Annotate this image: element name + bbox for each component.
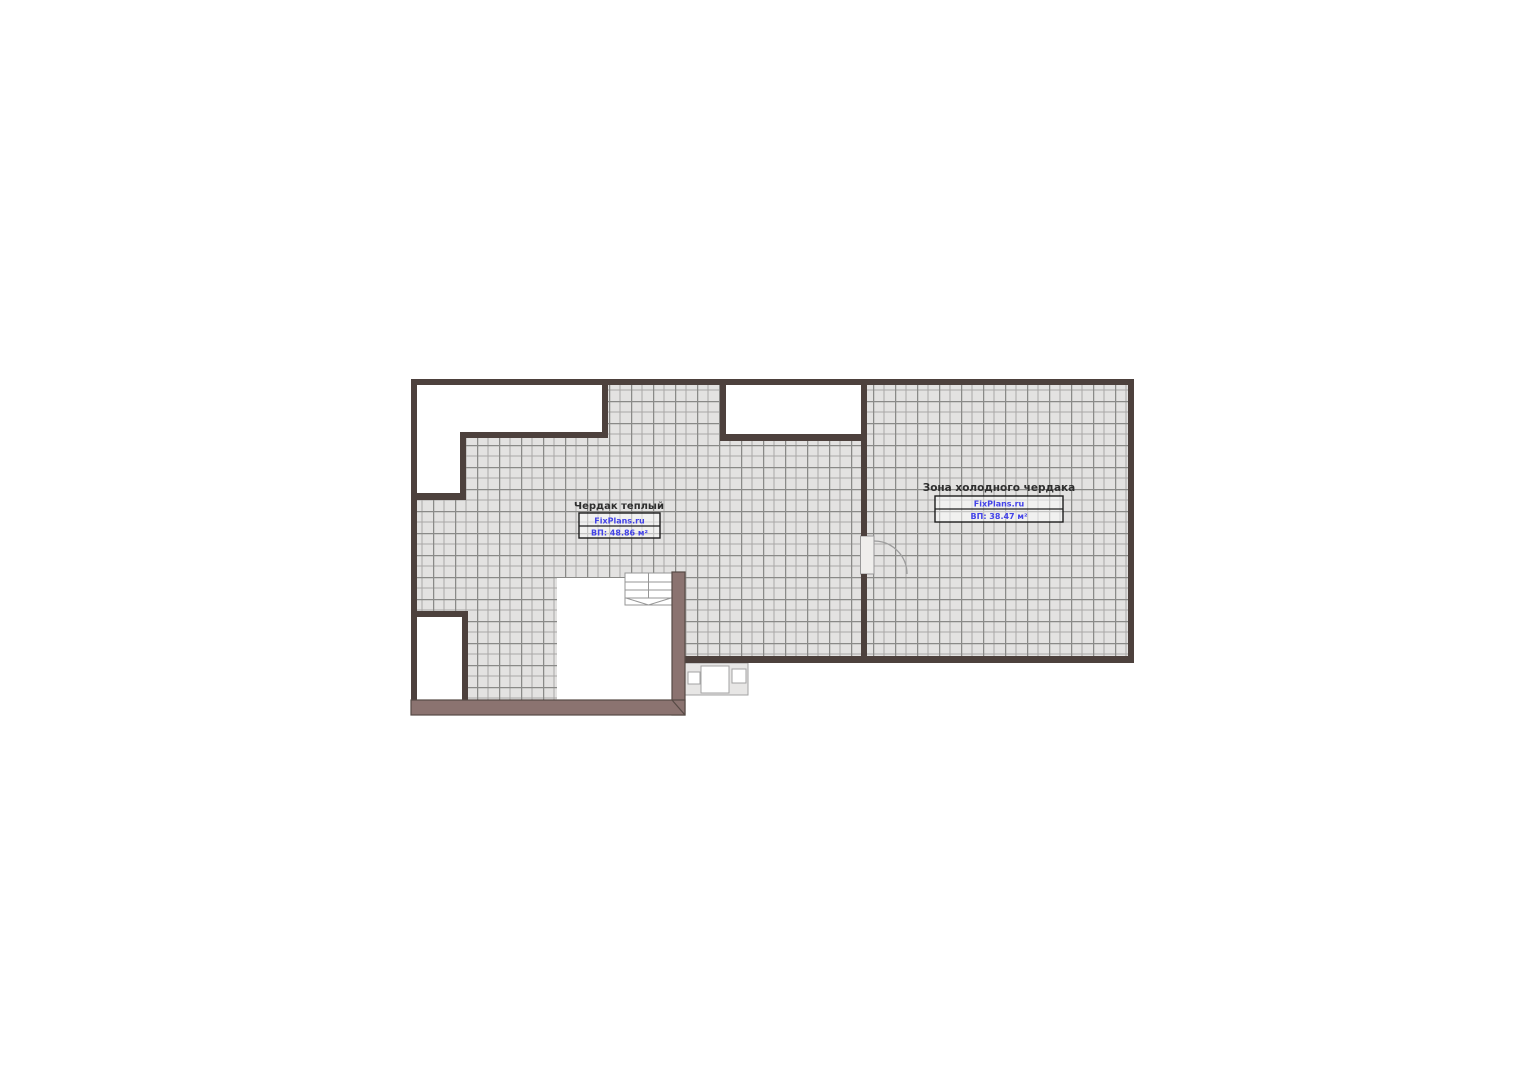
wall-left — [411, 379, 417, 715]
wall-divider-lower — [861, 574, 867, 663]
void-top-left-column — [411, 379, 466, 500]
room-title-cold: Зона холодного чердака — [923, 482, 1076, 494]
wall-void3-top — [411, 611, 468, 617]
room-label-warm-attic: Чердак теплый FixPlans.ru ВП: 48.86 м² — [574, 501, 664, 538]
wall-bottom — [672, 656, 1134, 663]
room-label-cold-attic: Зона холодного чердака FixPlans.ru ВП: 3… — [923, 482, 1076, 522]
area-text-cold: ВП: 38.47 м² — [971, 512, 1028, 521]
wall-void1-right — [602, 379, 608, 438]
wall-notch-bottom — [720, 434, 867, 441]
staircase-symbol — [625, 573, 672, 605]
wall-divider-upper — [861, 379, 867, 536]
chimney-block-symbol — [685, 663, 748, 695]
wall-top — [411, 379, 1134, 385]
thick-wall-stairwell — [672, 572, 685, 715]
wall-void3-right — [462, 611, 468, 700]
void-bottom-left — [411, 611, 468, 700]
thick-wall-bottom-band — [411, 700, 685, 715]
area-text-warm: ВП: 48.86 м² — [591, 529, 648, 538]
floor-plan-page: Чердак теплый FixPlans.ru ВП: 48.86 м² З… — [0, 0, 1528, 1080]
wall-void1-bottom — [460, 432, 608, 438]
wall-notch-left — [720, 379, 726, 441]
room-title-warm: Чердак теплый — [574, 501, 664, 512]
wall-void2-right — [460, 432, 466, 500]
void-top-middle-notch — [720, 379, 867, 441]
watermark-text-warm: FixPlans.ru — [594, 517, 645, 526]
wall-void2-bottom — [411, 493, 466, 500]
wall-right — [1128, 379, 1134, 663]
watermark-text-cold: FixPlans.ru — [974, 500, 1025, 509]
floor-plan-canvas: Чердак теплый FixPlans.ru ВП: 48.86 м² З… — [0, 0, 1528, 1080]
